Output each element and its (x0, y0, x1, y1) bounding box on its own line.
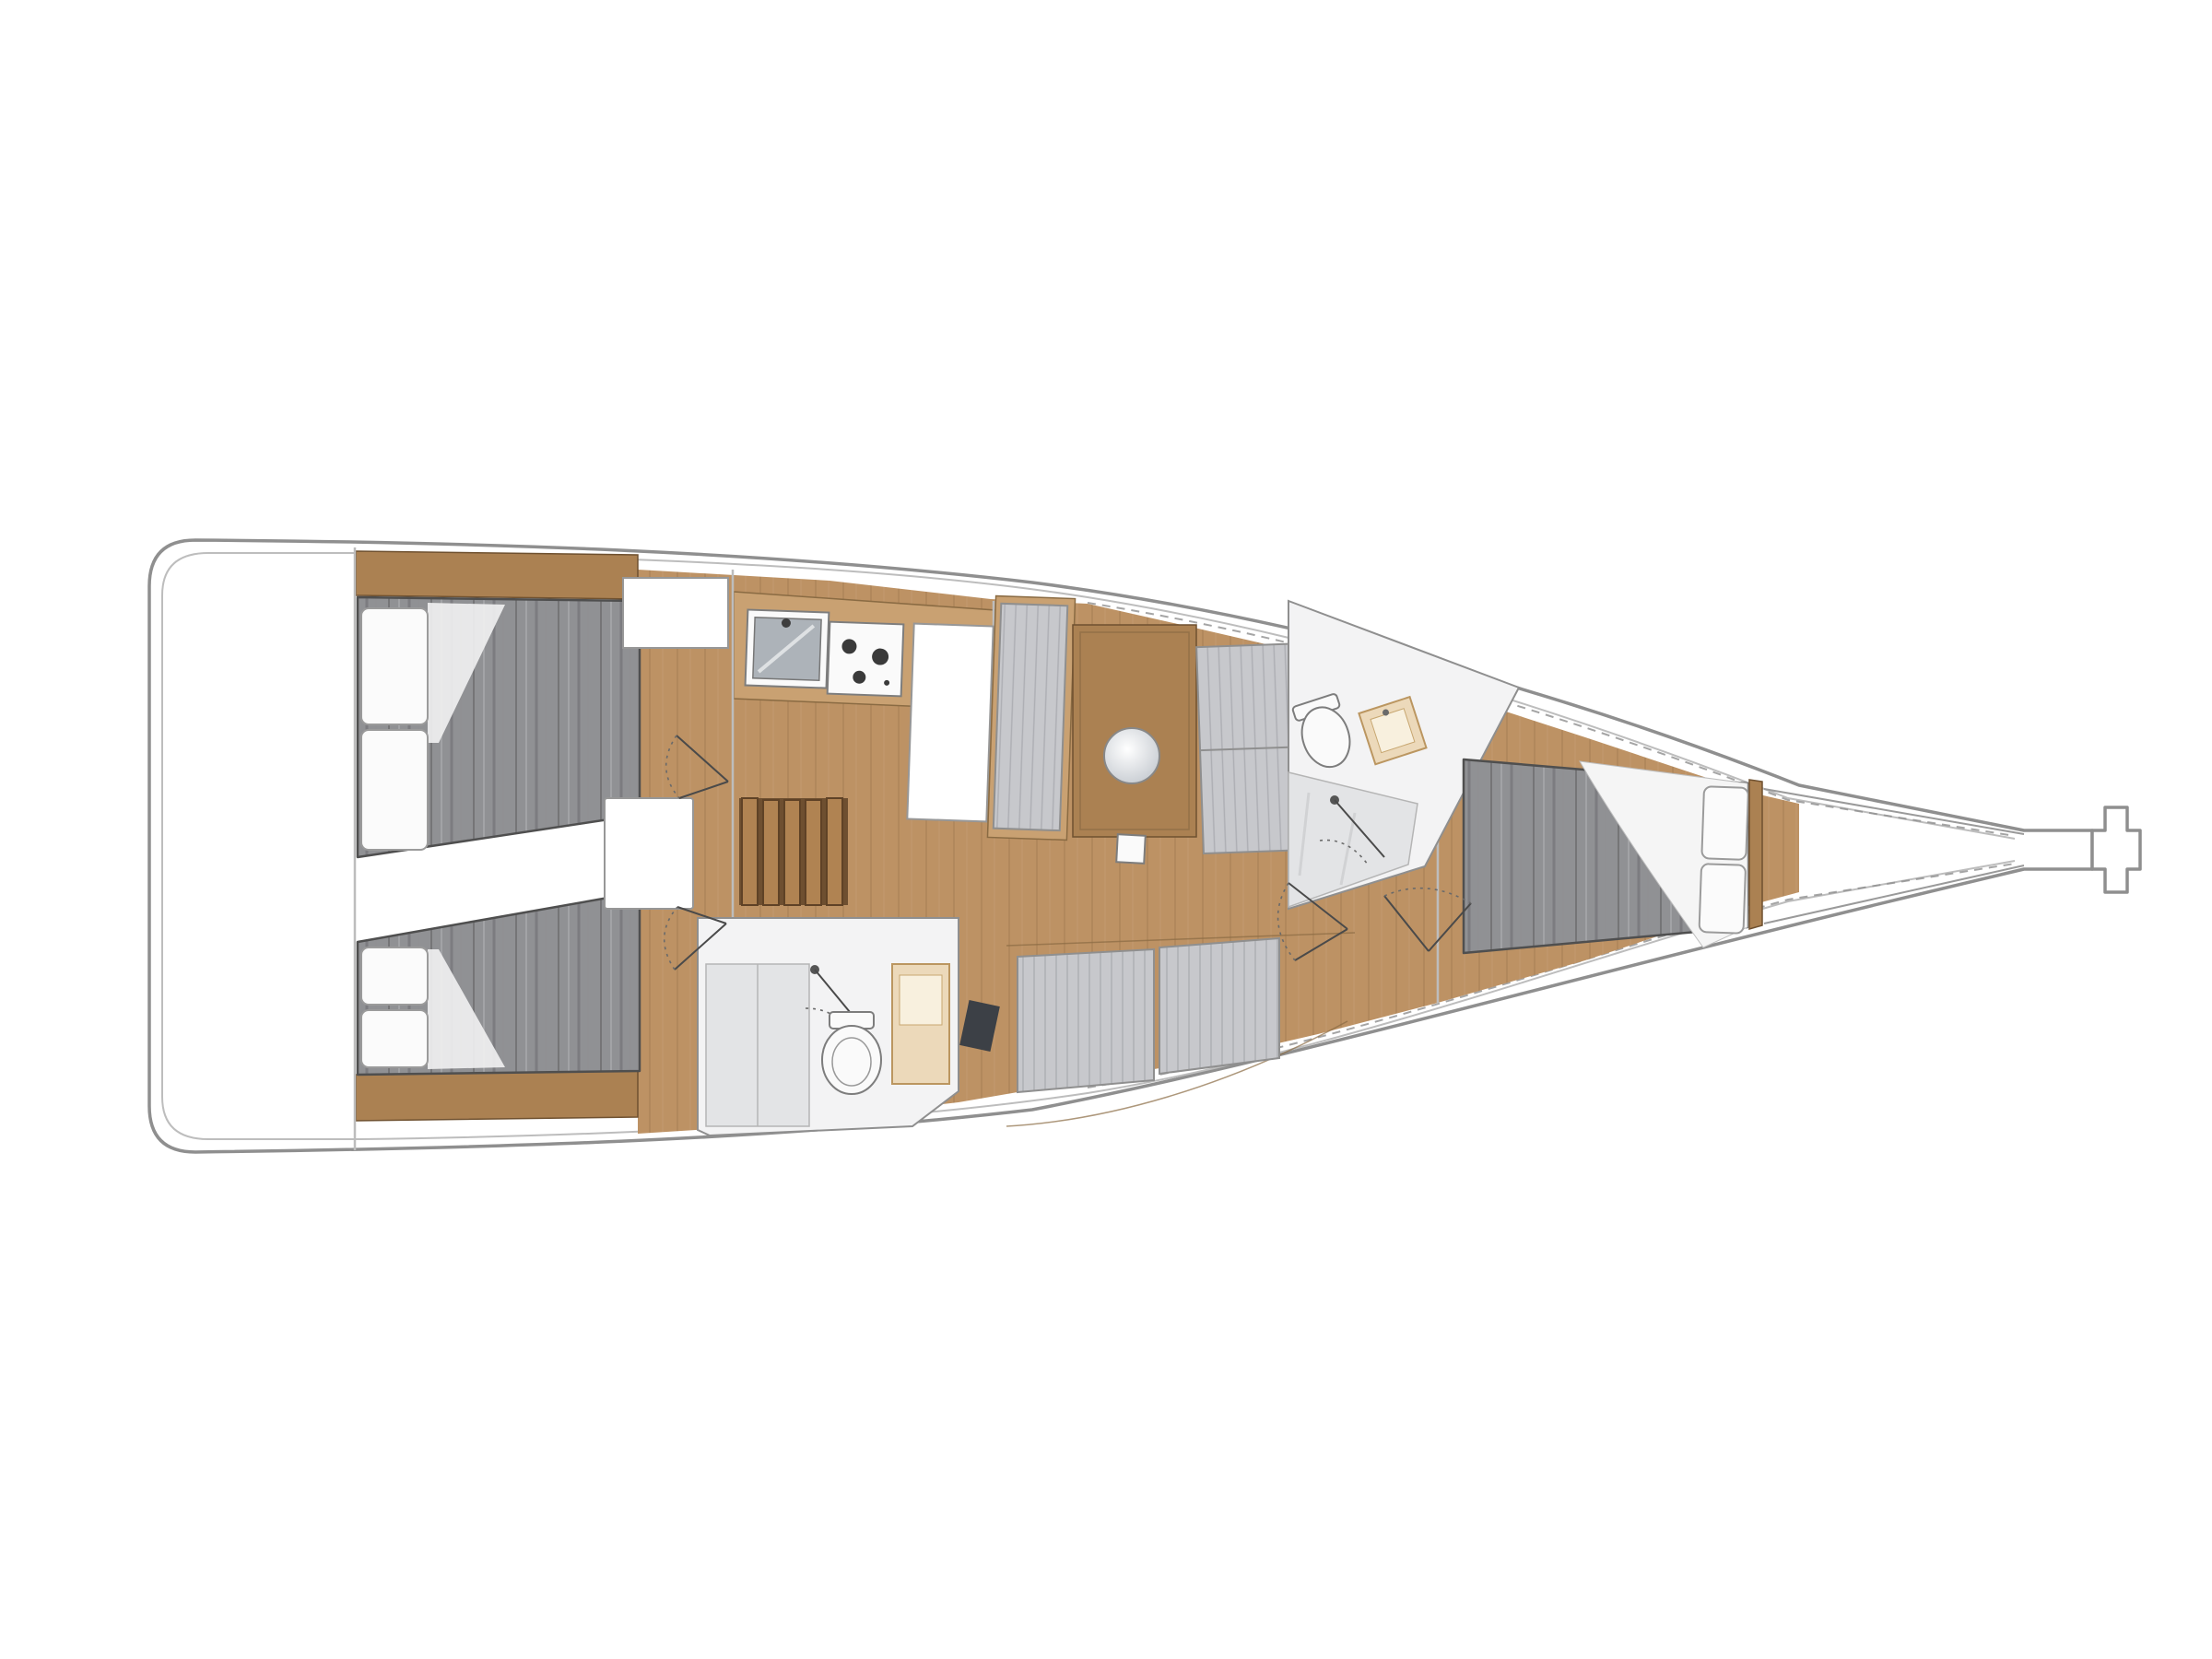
headboard-shelf-starboard (356, 551, 638, 599)
settee-port-cushion (1018, 949, 1154, 1092)
settee-port-cushion (1159, 938, 1279, 1074)
galley-sink (746, 610, 829, 688)
saloon-table (1073, 625, 1196, 837)
aft-head (698, 918, 959, 1135)
pillow (361, 608, 428, 724)
aft-washbasin (892, 964, 949, 1084)
companionway-steps (742, 798, 842, 905)
chart-table (907, 624, 993, 822)
mast-step (1116, 834, 1146, 864)
berth-frame-strip (1749, 780, 1762, 929)
yacht-floor-plan (0, 0, 2212, 1659)
pillow (361, 1010, 428, 1067)
pillow (361, 947, 428, 1005)
settee-starboard-aft (987, 596, 1075, 841)
headboard-shelf-port (356, 1071, 638, 1121)
storage-locker (623, 578, 728, 648)
galley-stove (828, 622, 904, 697)
engine-box (605, 798, 693, 909)
aft-cabin-starboard (358, 597, 640, 857)
aft-toilet (822, 1012, 881, 1094)
pillow (361, 730, 428, 850)
table-inlay (1104, 728, 1159, 783)
